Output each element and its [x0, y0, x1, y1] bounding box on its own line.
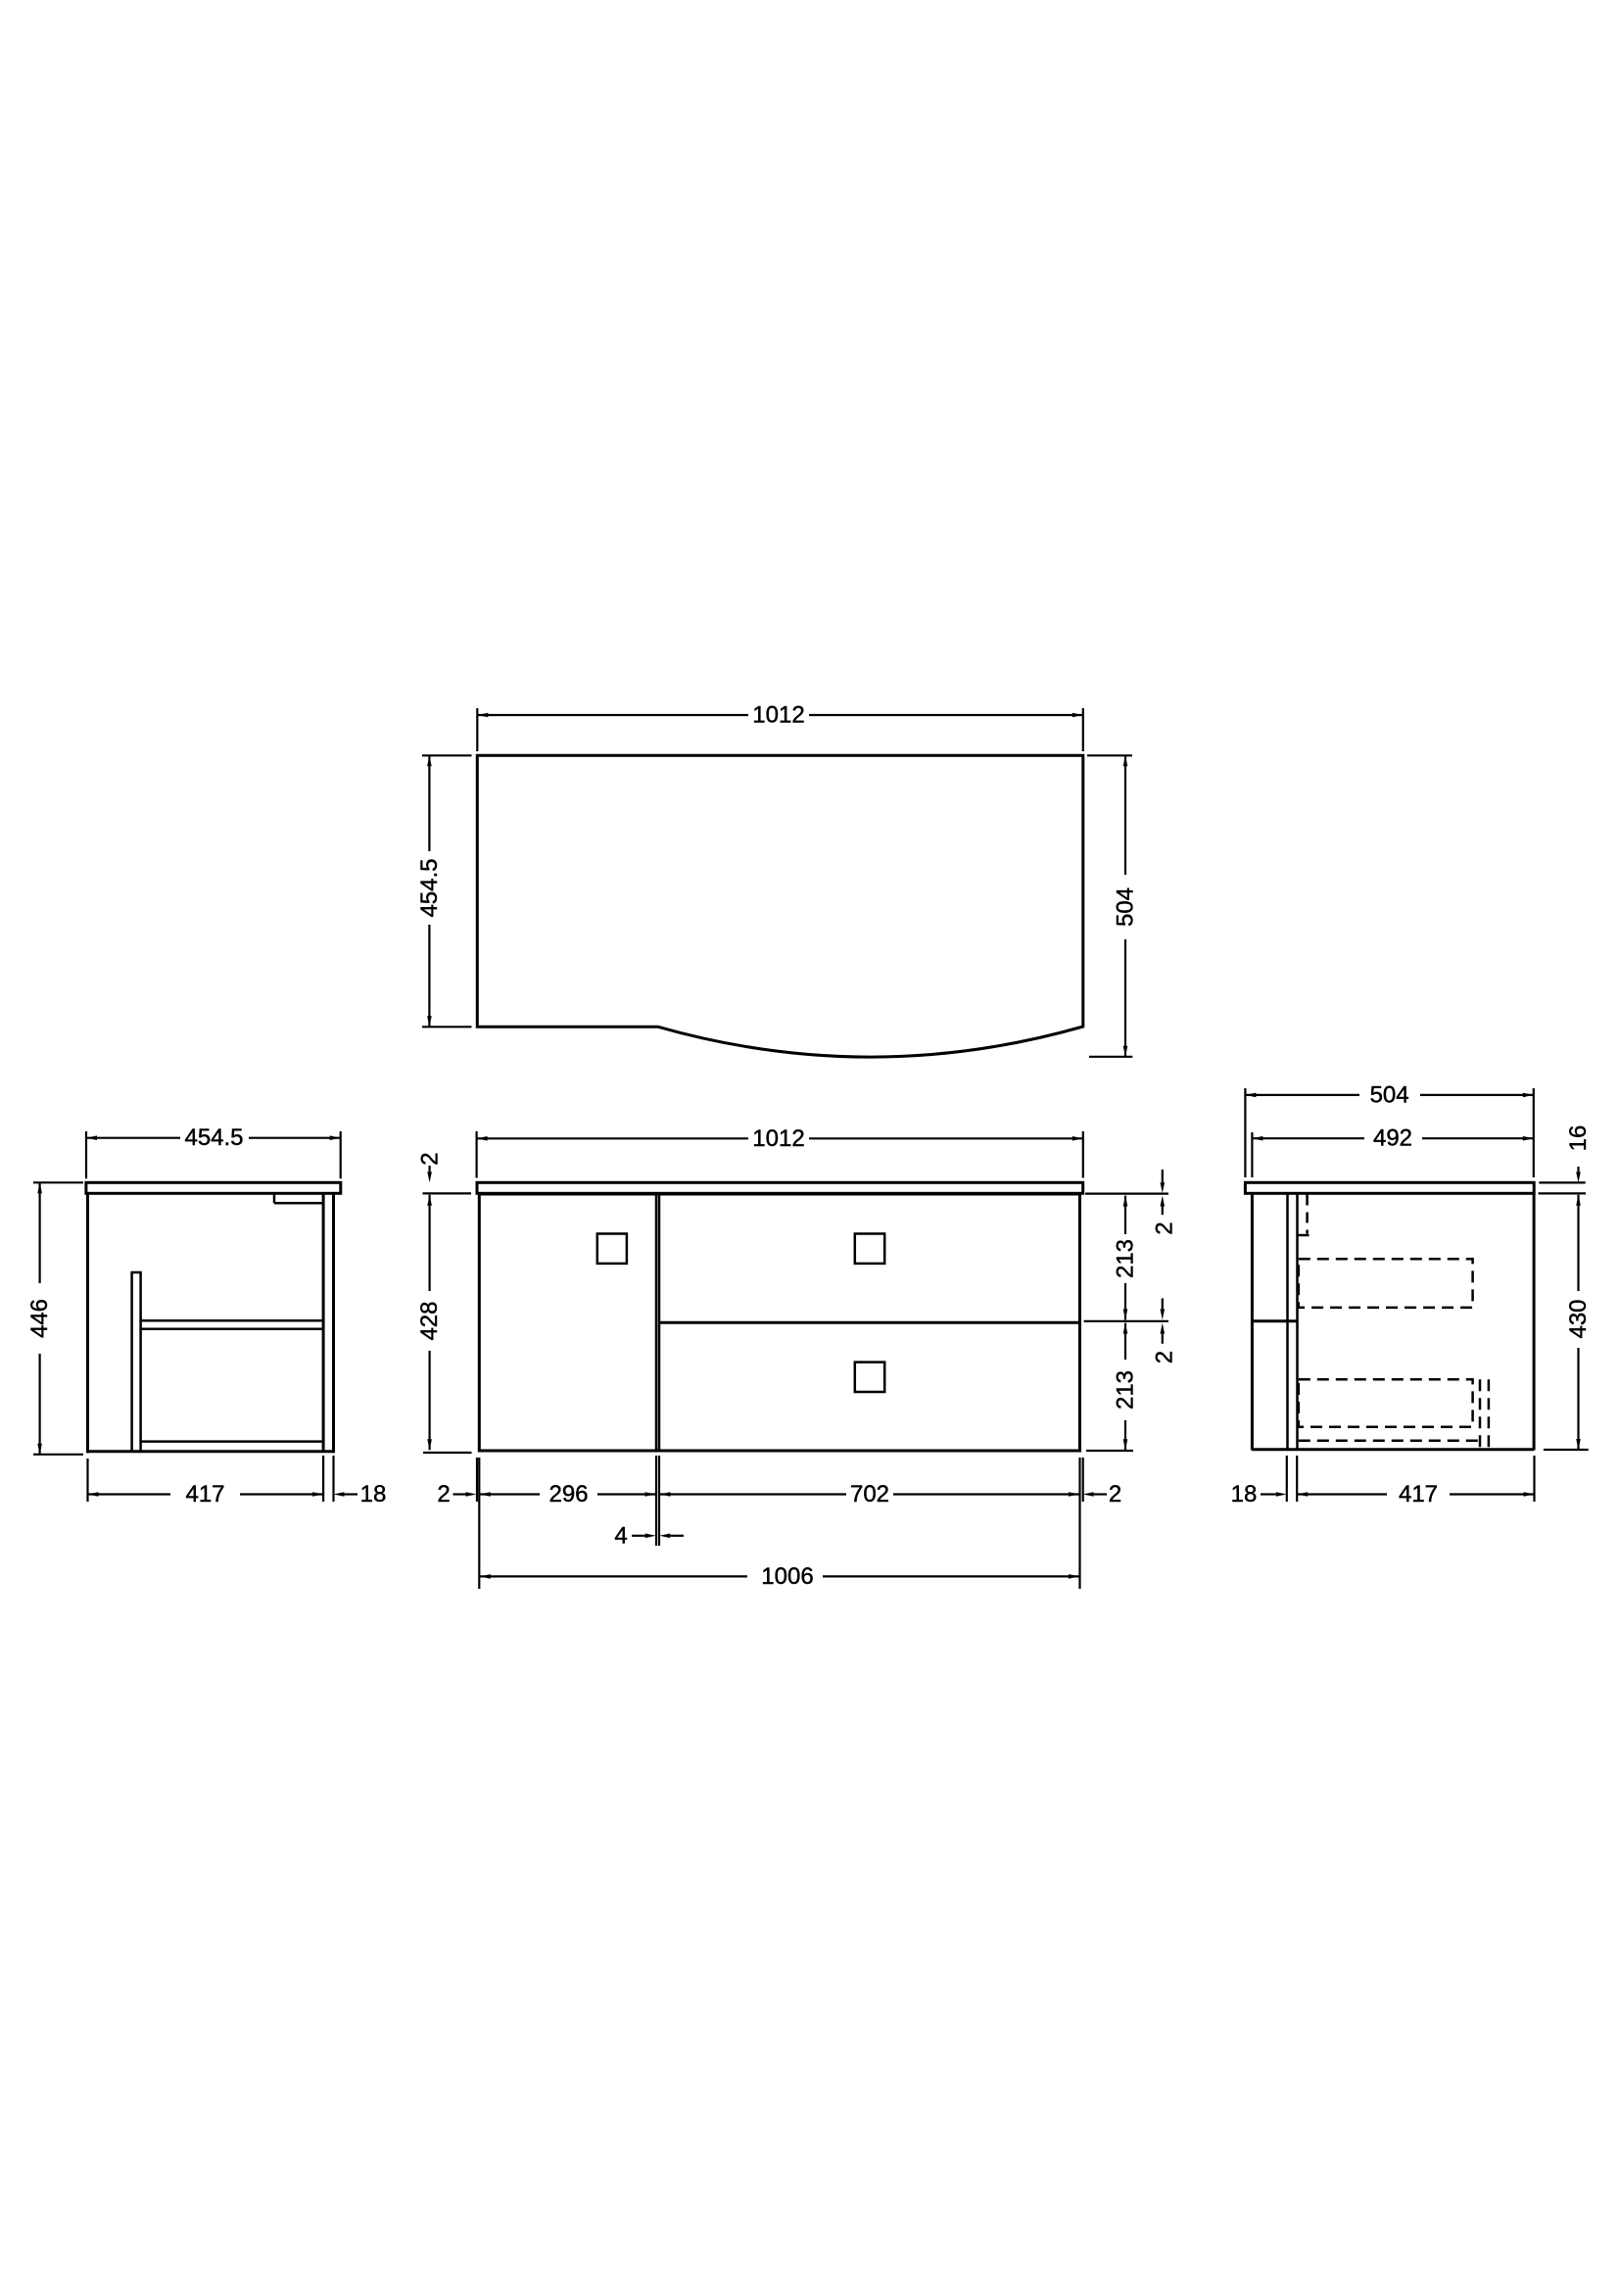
svg-text:504: 504 [1113, 887, 1139, 927]
svg-text:18: 18 [1231, 1481, 1258, 1507]
svg-text:296: 296 [548, 1481, 588, 1507]
svg-text:430: 430 [1565, 1299, 1592, 1338]
svg-text:454.5: 454.5 [184, 1124, 243, 1151]
svg-text:2: 2 [417, 1152, 444, 1165]
svg-text:4: 4 [614, 1522, 627, 1549]
svg-text:428: 428 [416, 1301, 443, 1340]
svg-text:18: 18 [360, 1481, 387, 1507]
svg-text:446: 446 [26, 1299, 53, 1338]
svg-text:702: 702 [850, 1481, 889, 1507]
svg-text:213: 213 [1113, 1370, 1139, 1410]
svg-text:213: 213 [1113, 1239, 1139, 1278]
svg-text:2: 2 [1151, 1221, 1177, 1234]
svg-text:1012: 1012 [752, 702, 804, 729]
svg-text:454.5: 454.5 [416, 858, 443, 917]
svg-text:492: 492 [1373, 1125, 1412, 1152]
svg-text:2: 2 [1151, 1351, 1177, 1363]
svg-text:16: 16 [1565, 1125, 1592, 1152]
svg-text:1012: 1012 [752, 1125, 804, 1152]
svg-text:1006: 1006 [761, 1563, 813, 1590]
svg-text:2: 2 [437, 1481, 450, 1507]
svg-text:417: 417 [1399, 1481, 1438, 1507]
svg-text:504: 504 [1370, 1081, 1409, 1108]
svg-text:2: 2 [1109, 1481, 1121, 1507]
svg-text:417: 417 [185, 1481, 224, 1507]
